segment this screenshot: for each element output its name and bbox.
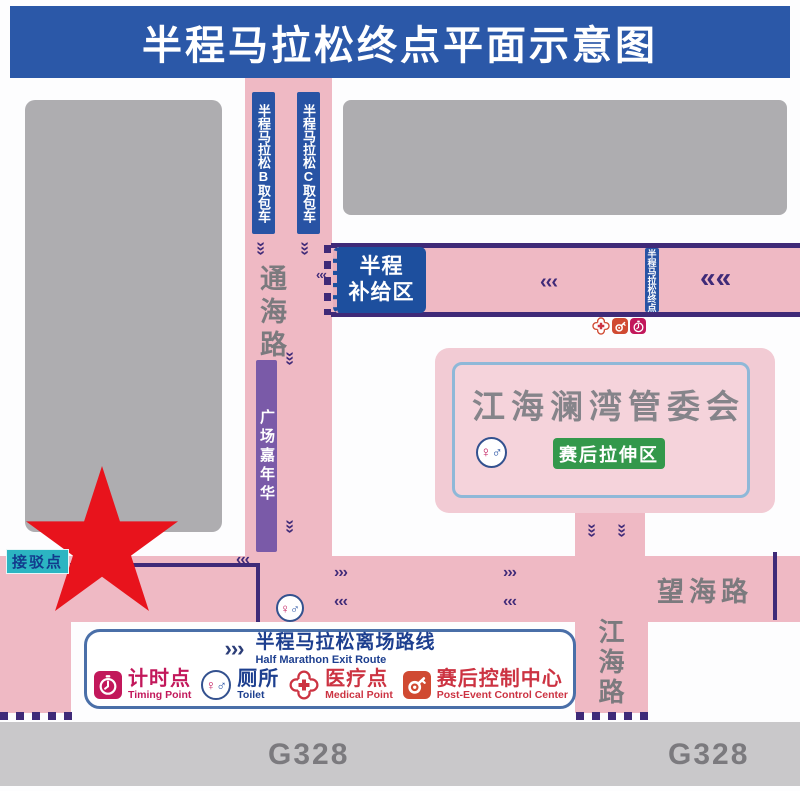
toilet-icon-road: ♀♂ xyxy=(276,594,304,622)
medical-point-icon xyxy=(592,317,610,335)
stretch-zone-label: 赛后拉伸区 xyxy=(559,441,659,467)
legend-item-timing: 计时点Timing Point xyxy=(94,669,191,701)
strip-carnival-label: 广场嘉年华 xyxy=(256,409,277,504)
building-top-right xyxy=(343,100,787,215)
legend-medical-en: Medical Point xyxy=(325,690,393,701)
legend-toilet-en: Toilet xyxy=(237,690,279,701)
chevron-left-icon: ‹‹‹ xyxy=(316,268,326,281)
chevron-right-icon: ››› xyxy=(503,565,516,581)
strip-bag-c-label: 半程马拉松C取包车 xyxy=(299,104,318,223)
legend-item-toilet: ♀♂ 厕所Toilet xyxy=(201,669,279,701)
strip-carnival: 广场嘉年华 xyxy=(256,360,277,552)
road-label-g328-left: G328 xyxy=(268,738,349,772)
control-center-icon xyxy=(403,671,431,699)
road-left-exit xyxy=(0,620,71,713)
male-icon: ♂ xyxy=(216,677,227,693)
chevron-left-big-icon: «« xyxy=(700,264,731,292)
exit-route-label-cn: 半程马拉松离场路线 xyxy=(255,633,435,654)
chevron-down-icon: ››› xyxy=(252,242,268,255)
toilet-icon-committee: ♀♂ xyxy=(476,437,507,468)
strip-bag-b: 半程马拉松B取包车 xyxy=(252,92,275,234)
shuttle-point-label: 接驳点 xyxy=(6,549,69,574)
chevron-left-icon: ‹‹‹ xyxy=(236,552,249,568)
supply-zone-box: 半程 补给区 xyxy=(333,247,426,313)
chevron-down-icon: ››› xyxy=(583,524,599,537)
strip-bag-b-label: 半程马拉松B取包车 xyxy=(254,104,273,223)
title-banner: 半程马拉松终点平面示意图 xyxy=(10,6,790,78)
committee-label: 江海澜湾管委会 xyxy=(472,380,745,428)
road-label-jianghai: 江海路 xyxy=(592,618,629,708)
legend-control-en: Post-Event Control Center xyxy=(437,690,568,701)
road-label-wanghai: 望海路 xyxy=(657,570,753,609)
supply-zone-line2: 补给区 xyxy=(349,280,415,306)
map-canvas: 半程马拉松终点平面示意图 半程马拉松B取包车 半程马拉松C取包车 通海路 广场嘉… xyxy=(0,0,800,791)
strip-bag-c: 半程马拉松C取包车 xyxy=(297,92,320,234)
exit-route-label-en: Half Marathon Exit Route xyxy=(255,654,386,666)
chevron-left-icon: ‹‹‹ xyxy=(540,272,557,292)
strip-finish-point-label: 半程马拉松终点 xyxy=(646,249,659,312)
chevron-right-icon: ››› xyxy=(334,565,347,581)
legend-item-medical: 医疗点Medical Point xyxy=(289,669,393,701)
chevron-down-icon: ››› xyxy=(296,242,312,255)
chevron-down-icon: ››› xyxy=(613,524,629,537)
male-icon: ♂ xyxy=(290,601,300,616)
chevron-down-icon: ››› xyxy=(281,520,297,533)
legend-exit-route: ››› 半程马拉松离场路线 Half Marathon Exit Route xyxy=(100,633,560,666)
stretch-zone-box: 赛后拉伸区 xyxy=(553,438,665,469)
legend-item-control: 赛后控制中心Post-Event Control Center xyxy=(403,669,568,701)
junction-dashes-jianghai xyxy=(576,712,650,720)
legend-medical-cn: 医疗点 xyxy=(325,669,393,690)
chevron-down-icon: ››› xyxy=(281,352,297,365)
female-icon: ♀ xyxy=(206,677,217,693)
page-title: 半程马拉松终点平面示意图 xyxy=(142,13,658,71)
legend-items: 计时点Timing Point ♀♂ 厕所Toilet 医疗点Medical P… xyxy=(94,666,568,704)
legend-timing-cn: 计时点 xyxy=(128,669,191,690)
junction-dashes-left xyxy=(0,712,72,720)
road-edge-line-right xyxy=(773,552,777,620)
legend-timing-en: Timing Point xyxy=(128,690,191,701)
supply-zone-line1: 半程 xyxy=(360,254,404,280)
road-label-g328-right: G328 xyxy=(668,738,749,772)
road-label-tonghai: 通海路 xyxy=(252,264,291,363)
control-center-icon xyxy=(612,318,628,334)
female-icon: ♀ xyxy=(280,601,290,616)
timing-point-icon xyxy=(94,671,122,699)
toilet-icon: ♀♂ xyxy=(201,670,231,700)
legend-toilet-cn: 厕所 xyxy=(237,669,279,690)
medical-point-icon xyxy=(289,670,319,700)
exit-route-chevron-icon: ››› xyxy=(225,638,244,660)
strip-finish-point: 半程马拉松终点 xyxy=(645,248,659,312)
road-edge-line-v xyxy=(256,563,260,622)
female-icon: ♀ xyxy=(480,444,491,461)
timing-point-icon xyxy=(630,318,646,334)
building-left xyxy=(25,100,222,532)
male-icon: ♂ xyxy=(492,444,503,461)
chevron-left-icon: ‹‹‹ xyxy=(503,594,516,610)
chevron-left-icon: ‹‹‹ xyxy=(334,594,347,610)
legend-control-cn: 赛后控制中心 xyxy=(437,669,568,690)
